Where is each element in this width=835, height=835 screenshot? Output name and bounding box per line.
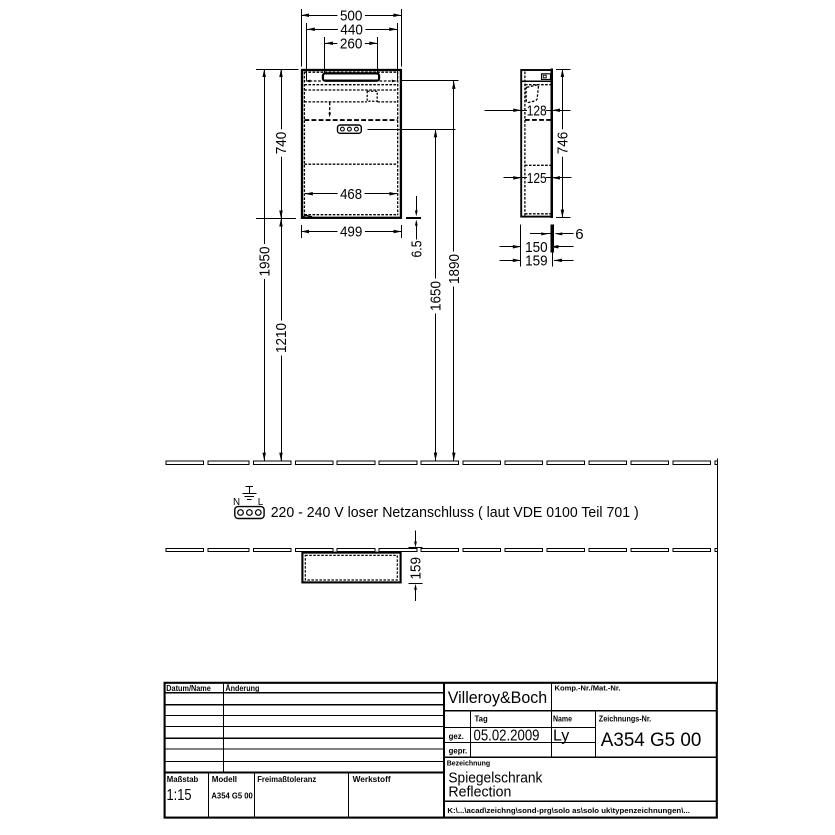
svg-text:468: 468	[340, 186, 362, 203]
svg-text:128: 128	[527, 103, 547, 120]
svg-text:6.5: 6.5	[409, 241, 426, 258]
svg-text:Tag: Tag	[475, 715, 489, 724]
svg-text:6: 6	[575, 226, 583, 243]
svg-text:Ly: Ly	[553, 727, 569, 744]
svg-text:Werkstoff: Werkstoff	[353, 775, 391, 784]
svg-text:Name: Name	[553, 715, 573, 724]
svg-text:1890: 1890	[446, 254, 463, 284]
svg-text:Modell: Modell	[212, 775, 237, 784]
svg-text:Maßstab: Maßstab	[167, 775, 199, 784]
svg-text:125: 125	[527, 170, 547, 187]
svg-text:Zeichnungs-Nr.: Zeichnungs-Nr.	[599, 715, 652, 724]
svg-text:740: 740	[273, 132, 290, 155]
svg-text:499: 499	[340, 224, 363, 241]
svg-text:Datum/Name: Datum/Name	[166, 684, 211, 693]
svg-text:Freimaßtoleranz: Freimaßtoleranz	[257, 775, 316, 784]
svg-text:159: 159	[525, 253, 548, 270]
svg-text:746: 746	[555, 132, 572, 155]
svg-text:Änderung: Änderung	[225, 684, 259, 693]
svg-text:Komp.-Nr./Mat.-Nr.: Komp.-Nr./Mat.-Nr.	[555, 684, 621, 693]
svg-text:A354 G5 00: A354 G5 00	[601, 730, 702, 751]
svg-text:Villeroy&Boch: Villeroy&Boch	[448, 688, 548, 707]
svg-text:159: 159	[408, 557, 425, 580]
svg-text:05.02.2009: 05.02.2009	[474, 727, 540, 744]
svg-text:A354 G5 00: A354 G5 00	[211, 790, 253, 800]
svg-text:1:15: 1:15	[167, 787, 192, 804]
svg-text:260: 260	[340, 35, 363, 52]
svg-text:1950: 1950	[256, 247, 273, 277]
svg-text:220 - 240 V loser Netzanschlus: 220 - 240 V loser Netzanschluss ( laut V…	[271, 505, 639, 521]
svg-text:K:\...\acad\zeichng\sond-prg\s: K:\...\acad\zeichng\sond-prg\solo as\sol…	[447, 806, 689, 815]
svg-text:gez.: gez.	[449, 732, 464, 741]
svg-text:1650: 1650	[428, 281, 445, 311]
svg-text:Bezeichnung: Bezeichnung	[447, 759, 491, 768]
svg-text:1210: 1210	[273, 323, 290, 353]
svg-text:gepr.: gepr.	[449, 747, 468, 756]
svg-text:Reflection: Reflection	[448, 784, 511, 800]
